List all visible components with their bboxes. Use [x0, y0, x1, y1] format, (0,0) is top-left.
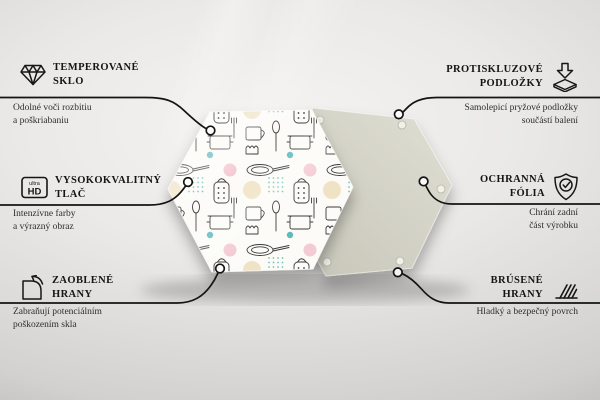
feature-title-line: VYSOKOKVALITNÝ: [55, 174, 161, 188]
rounded-corner-icon: [19, 275, 45, 301]
feature-description: Hladký a bezpečný povrch: [476, 306, 578, 319]
product-infographic: TEMPEROVANÉ SKLO Odolné voči rozbitiu a …: [0, 0, 600, 400]
anti-slip-pads-icon: [550, 61, 580, 92]
feature-title-line: PROTISKLUZOVÉ: [446, 63, 543, 77]
ground-edges-icon: [550, 276, 578, 300]
feature-ground-edges: BRÚSENÉ HRANY: [491, 274, 578, 301]
feature-protective-film: OCHRANNÁ FÓLIA: [480, 172, 580, 202]
desc-line: Chrání zadní: [529, 207, 578, 220]
feature-title-line: TLAČ: [55, 188, 161, 202]
feature-description: Samolepicí pryžové podložky součástí bal…: [465, 102, 578, 128]
feature-title-line: BRÚSENÉ: [491, 274, 543, 288]
ultra-hd-badge-icon: ultra HD: [21, 176, 48, 199]
feature-anti-slip-pads: PROTISKLUZOVÉ PODLOŽKY: [446, 61, 580, 92]
shield-check-icon: [552, 172, 580, 202]
feature-description: Chrání zadní část výrobku: [529, 207, 578, 233]
feature-tempered-glass: TEMPEROVANÉ SKLO: [20, 61, 139, 88]
desc-line: Odolné voči rozbitiu: [13, 102, 92, 115]
desc-line: Hladký a bezpečný povrch: [476, 306, 578, 319]
desc-line: a poškriabaniu: [13, 115, 92, 128]
feature-description: Odolné voči rozbitiu a poškriabaniu: [13, 102, 92, 128]
floor-shadow: [140, 277, 470, 303]
feature-description: Zabraňují potenciálním poškozením skla: [13, 306, 102, 332]
feature-title-line: HRANY: [52, 288, 114, 302]
feature-title-line: TEMPEROVANÉ: [53, 61, 139, 75]
hd-label: HD: [28, 187, 42, 198]
feature-title-line: PODLOŽKY: [446, 77, 543, 91]
feature-title-line: FÓLIA: [480, 187, 545, 201]
desc-line: Intenzívne farby: [13, 208, 76, 221]
feature-rounded-edges: ZAOBLENÉ HRANY: [19, 274, 114, 301]
feature-title-line: ZAOBLENÉ: [52, 274, 114, 288]
feature-title-line: SKLO: [53, 75, 139, 89]
desc-line: a výrazný obraz: [13, 221, 76, 234]
feature-description: Intenzívne farby a výrazný obraz: [13, 208, 76, 234]
feature-title-line: HRANY: [491, 288, 543, 302]
desc-line: Zabraňují potenciálním: [13, 306, 102, 319]
desc-line: součástí balení: [465, 115, 578, 128]
diamond-icon: [20, 64, 46, 86]
feature-high-quality-print: ultra HD VYSOKOKVALITNÝ TLAČ: [21, 174, 161, 201]
feature-title-line: OCHRANNÁ: [480, 173, 545, 187]
desc-line: Samolepicí pryžové podložky: [465, 102, 578, 115]
desc-line: poškozením skla: [13, 319, 102, 332]
desc-line: část výrobku: [529, 220, 578, 233]
